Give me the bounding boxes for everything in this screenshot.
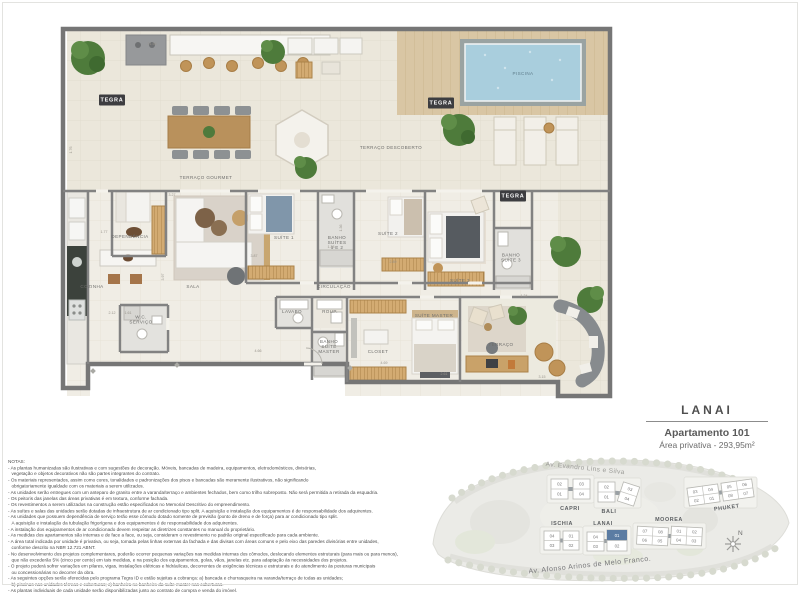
room-label-suite-1: SUÍTE 1 bbox=[274, 235, 294, 240]
site-building-capri: 02010304 bbox=[547, 475, 594, 503]
site-unit-number: 03 bbox=[593, 544, 598, 549]
room-label-suite-master: SUÍTE MASTER bbox=[415, 313, 453, 318]
plan-labels-overlay: TERRAÇO GOURMETTERRAÇO DESCOBERTOPISCINA… bbox=[0, 0, 800, 460]
site-building-label-moorea: MOOREA bbox=[655, 517, 683, 523]
unit-header: LANAI Apartamento 101 Área privativa - 2… bbox=[627, 403, 787, 450]
room-label-circulacao: CIRCULAÇÃO bbox=[317, 284, 351, 289]
room-label-banho-suite-3: BANHOSUÍTE 3 bbox=[501, 253, 521, 263]
dimension-label: 4.66 bbox=[254, 349, 261, 353]
dimension-label: 3.87 bbox=[250, 254, 257, 258]
dimension-label: 2.61 bbox=[440, 372, 447, 376]
site-unit-number: 04 bbox=[676, 537, 682, 542]
room-label-cozinha: COZINHA bbox=[80, 284, 103, 289]
site-building-phuket: 0304020105060807 bbox=[684, 477, 757, 508]
site-unit-number: 01 bbox=[615, 533, 620, 538]
dimension-label: 3.97 bbox=[161, 273, 165, 280]
tegra-logo: TEGRA bbox=[99, 95, 125, 106]
room-label-suite-2: SUÍTE 2 bbox=[378, 231, 398, 236]
private-area: Área privativa - 293,95m² bbox=[627, 440, 787, 450]
dimension-label: 1.77 bbox=[100, 230, 107, 234]
room-label-terraco-descoberto: TERRAÇO DESCOBERTO bbox=[360, 145, 422, 150]
north-label: N bbox=[738, 530, 743, 537]
site-unit-number: 03 bbox=[550, 543, 555, 548]
room-label-dependencia: DEPENDÊNCIA bbox=[111, 234, 148, 239]
dimension-label: 1.36 bbox=[339, 224, 343, 231]
dimension-label: 4.69 bbox=[380, 361, 387, 365]
dimension-label: 1.28 bbox=[327, 245, 334, 249]
room-label-w-c-servico: W.C.SERVIÇO bbox=[129, 315, 152, 325]
dimension-label: 2.12 bbox=[108, 311, 115, 315]
site-unit-number: 05 bbox=[657, 538, 663, 543]
room-label-sala: SALA bbox=[186, 284, 199, 289]
apartment-number: Apartamento 101 bbox=[627, 427, 787, 439]
site-building-label-lanai: LANAI bbox=[593, 521, 612, 527]
dimension-label: 3.27 bbox=[168, 193, 175, 197]
room-label-terraco: TERRAÇO bbox=[489, 342, 514, 347]
site-unit-number: 08 bbox=[658, 529, 664, 534]
tegra-logo: TEGRA bbox=[428, 98, 454, 109]
site-unit-number: 01 bbox=[676, 528, 682, 533]
site-building-lanai: 04030102 bbox=[583, 526, 631, 555]
room-label-piscina: PISCINA bbox=[513, 71, 534, 76]
site-unit-number: 06 bbox=[642, 537, 648, 542]
tegra-logo: TEGRA bbox=[500, 191, 526, 202]
room-label-closet: CLOSET bbox=[368, 349, 389, 354]
room-label-suite-3: SUÍTE 3 bbox=[450, 278, 470, 283]
site-unit-number: 02 bbox=[615, 543, 620, 548]
site-unit-number: 04 bbox=[550, 533, 555, 538]
site-building-label-ischia: ISCHIA bbox=[551, 521, 573, 527]
room-label-roup: ROUP. bbox=[322, 309, 338, 314]
site-unit-number: 03 bbox=[579, 482, 584, 487]
site-plan: Av. Evandro Lins e Silva Av. Afonso Arin… bbox=[0, 455, 800, 587]
site-unit-number: 01 bbox=[604, 495, 609, 500]
header-divider bbox=[646, 421, 768, 422]
building-name: LANAI bbox=[627, 403, 787, 417]
site-unit-number: 01 bbox=[569, 533, 574, 538]
note-line: - As plantas individuais de cada unidade… bbox=[8, 588, 408, 594]
site-unit-number: 07 bbox=[642, 528, 648, 533]
site-unit-number: 02 bbox=[604, 485, 609, 490]
site-unit-number: 02 bbox=[557, 482, 562, 487]
dimension-label: 2.89 bbox=[389, 260, 396, 264]
dimension-label: 1.76 bbox=[69, 146, 73, 153]
dimension-label: 1.34 bbox=[520, 294, 527, 298]
site-unit-number: 02 bbox=[692, 529, 698, 534]
dimension-label: 3.15 bbox=[538, 375, 545, 379]
floor-plan: TERRAÇO GOURMETTERRAÇO DESCOBERTOPISCINA… bbox=[0, 0, 800, 460]
room-label-banho-suite-master: BANHOSUÍTEMASTER bbox=[318, 339, 339, 354]
dimension-label: 21.56 bbox=[147, 42, 156, 46]
dimension-label: 1.61 bbox=[124, 311, 131, 315]
site-unit-number: 03 bbox=[691, 538, 697, 543]
site-building-bali: 02010304 bbox=[594, 478, 641, 508]
site-unit-number: 02 bbox=[569, 543, 574, 548]
site-unit-number: 01 bbox=[557, 492, 562, 497]
site-building-moorea: 0708060501020403 bbox=[633, 523, 706, 549]
site-unit-number: 04 bbox=[593, 534, 598, 539]
site-building-ischia: 04030102 bbox=[540, 527, 583, 554]
site-unit-number: 04 bbox=[579, 492, 584, 497]
room-label-lavabo: LAVABO bbox=[282, 309, 302, 314]
site-building-label-bali: BALI bbox=[602, 509, 617, 515]
site-building-label-capri: CAPRI bbox=[560, 506, 580, 512]
room-label-terraco-gourmet: TERRAÇO GOURMET bbox=[180, 175, 233, 180]
